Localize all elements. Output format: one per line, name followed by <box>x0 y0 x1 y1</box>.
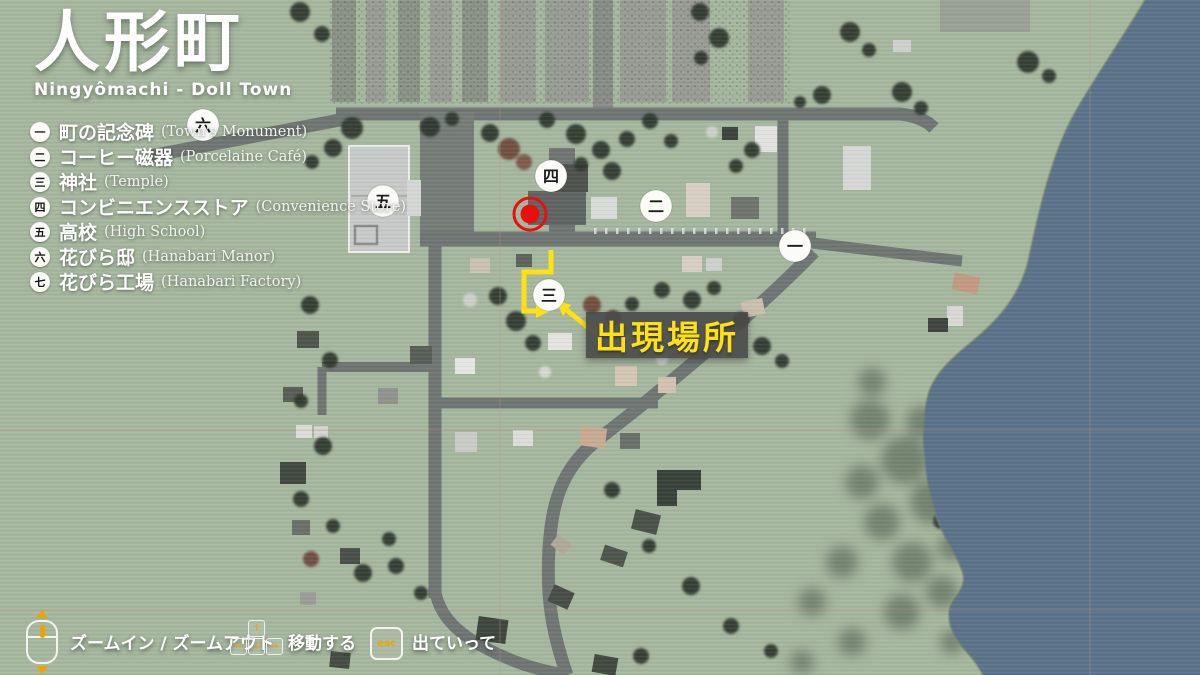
svg-text:二: 二 <box>648 197 664 216</box>
marker-convenience-store: 四 <box>535 160 567 192</box>
game-map-screen: 六 五 四 二 一 三 人形町 <box>0 0 1200 675</box>
spawn-location-label: 出現場所 <box>586 312 748 358</box>
legend-item-monument: 一 町の記念碑 (Town's Monument) <box>30 119 406 144</box>
legend-number-icon: 二 <box>30 147 50 167</box>
legend-item-manor: 六 花びら邸 (Hanabari Manor) <box>30 244 406 269</box>
legend-number-icon: 六 <box>30 247 50 267</box>
legend-number-icon: 七 <box>30 272 50 292</box>
marker-monument: 一 <box>779 230 811 262</box>
marker-cafe: 二 <box>640 190 672 222</box>
legend-item-factory: 七 花びら工場 (Hanabari Factory) <box>30 269 406 294</box>
right-key-icon: → <box>266 638 283 655</box>
mouse-scroll-icon <box>26 620 58 664</box>
exit-hint-label: 出ていって <box>412 629 496 654</box>
down-key-icon: ↓ <box>248 638 265 655</box>
map-legend: 一 町の記念碑 (Town's Monument) 二 コーヒー磁器 (Porc… <box>30 119 406 294</box>
scroll-down-arrow-icon <box>36 666 48 674</box>
legend-number-icon: 三 <box>30 172 50 192</box>
scroll-up-arrow-icon <box>36 610 48 618</box>
svg-text:三: 三 <box>541 286 557 305</box>
legend-item-convenience-store: 四 コンビニエンスストア (Convenience Store) <box>30 194 406 219</box>
svg-text:一: 一 <box>787 237 803 256</box>
legend-number-icon: 五 <box>30 222 50 242</box>
esc-key-icon: esc <box>370 627 403 660</box>
arrow-keys-icon: ↑ ← ↓ → <box>230 620 282 656</box>
mouse-wheel-icon <box>40 625 45 638</box>
up-key-icon: ↑ <box>248 620 265 637</box>
svg-text:四: 四 <box>543 167 559 186</box>
legend-number-icon: 一 <box>30 122 50 142</box>
legend-item-high-school: 五 高校 (High School) <box>30 219 406 244</box>
marker-temple: 三 <box>533 279 565 311</box>
move-hint-label: 移動する <box>288 629 356 654</box>
legend-number-icon: 四 <box>30 197 50 217</box>
legend-item-cafe: 二 コーヒー磁器 (Porcelaine Café) <box>30 144 406 169</box>
legend-item-temple: 三 神社 (Temple) <box>30 169 406 194</box>
left-key-icon: ← <box>230 638 247 655</box>
